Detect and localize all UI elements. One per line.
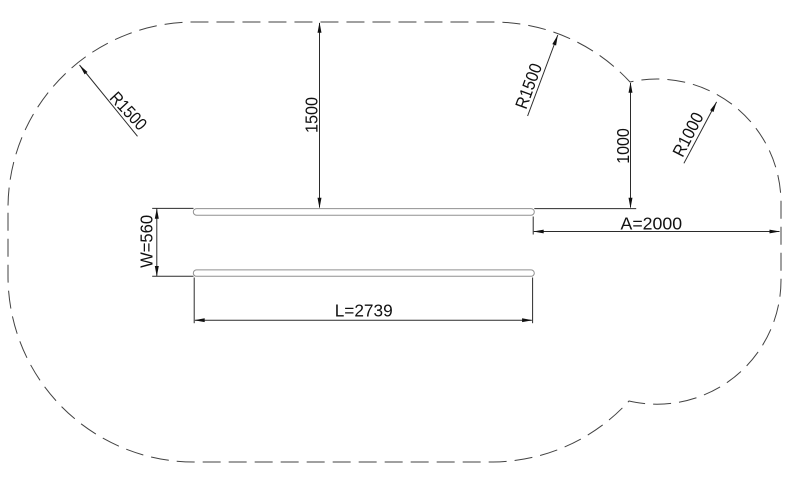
svg-text:A=2000: A=2000 [621, 213, 683, 233]
svg-text:W=560: W=560 [137, 215, 157, 268]
svg-text:R1500: R1500 [511, 60, 546, 111]
svg-text:R1500: R1500 [106, 88, 151, 135]
svg-text:1000: 1000 [613, 128, 633, 164]
svg-text:R1000: R1000 [668, 109, 707, 160]
svg-text:L=2739: L=2739 [335, 301, 393, 321]
svg-text:1500: 1500 [301, 97, 321, 133]
